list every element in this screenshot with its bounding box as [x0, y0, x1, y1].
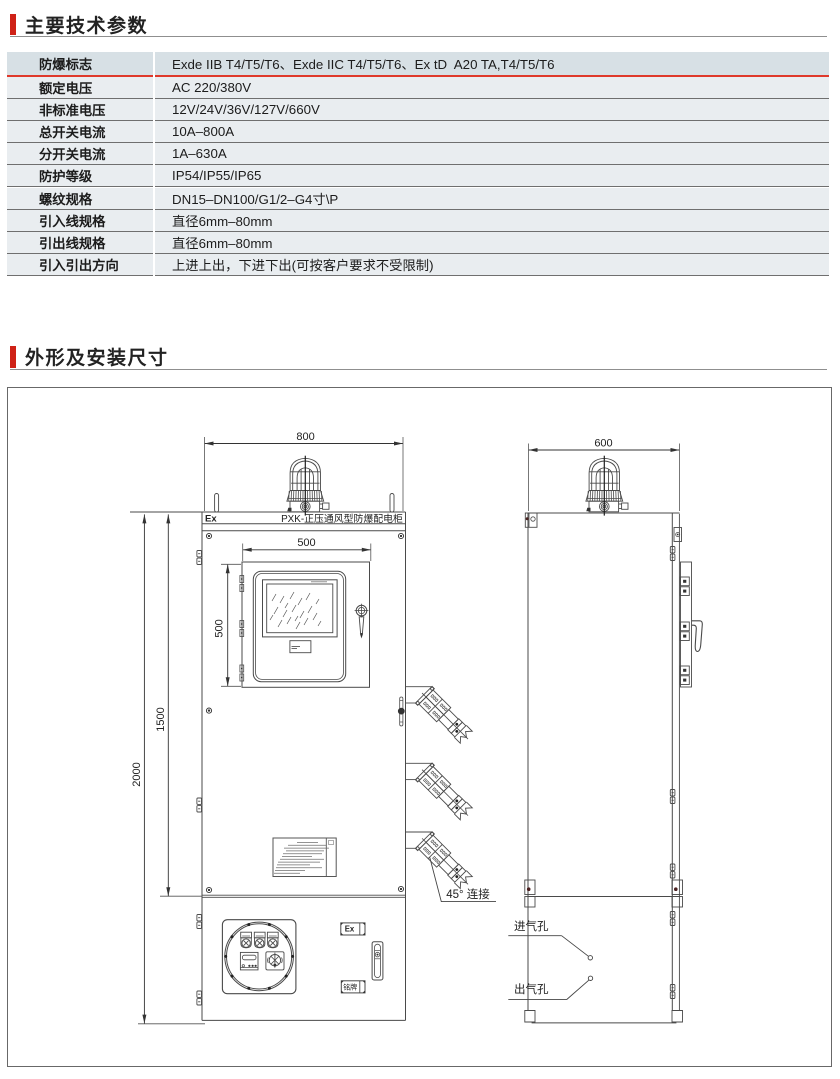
svg-text:Ex: Ex — [345, 925, 355, 934]
svg-text:Ex: Ex — [205, 514, 217, 525]
svg-text:500: 500 — [214, 619, 226, 637]
svg-text:进气孔: 进气孔 — [514, 919, 549, 933]
svg-text:2000: 2000 — [131, 762, 143, 786]
svg-text:500: 500 — [297, 537, 315, 549]
svg-text:600: 600 — [594, 437, 612, 449]
svg-text:出气孔: 出气孔 — [514, 982, 549, 996]
svg-text:PXK-正压通风型防爆配电柜: PXK-正压通风型防爆配电柜 — [281, 512, 403, 525]
svg-text:铭牌: 铭牌 — [343, 983, 357, 992]
svg-text:1500: 1500 — [155, 707, 167, 731]
svg-text:800: 800 — [296, 431, 314, 443]
svg-text:45° 连接: 45° 连接 — [446, 887, 490, 901]
